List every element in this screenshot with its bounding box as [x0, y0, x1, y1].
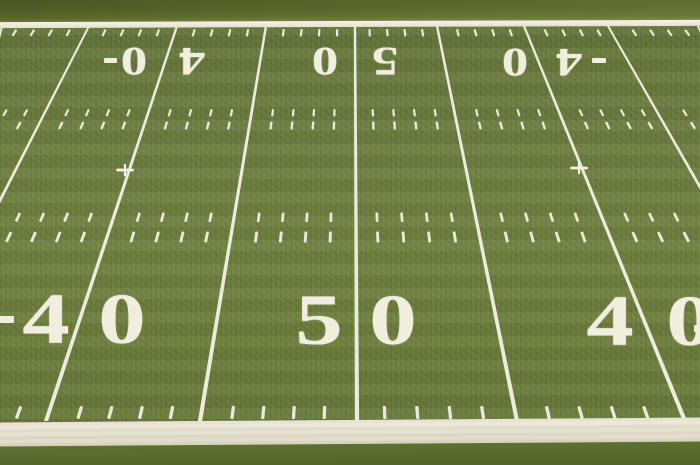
yard-digit: 0	[369, 284, 417, 356]
yard-number-near-40-left: 4 0	[28, 291, 140, 347]
football-field-photo: 4 0 5 0 4 0 4 0 5 0 4 0	[0, 0, 700, 465]
yard-number-far-50: 5 0	[315, 45, 395, 78]
yard-number-near-50: 5 0	[301, 292, 411, 348]
yard-lines-group	[0, 26, 700, 421]
goal-arrow-dash-far-left	[104, 58, 117, 63]
yard-digit: 5	[295, 284, 343, 356]
yard-digit: 4	[179, 42, 205, 82]
yard-number-far-40-left: 4 0	[124, 45, 202, 78]
yard-digit: 0	[312, 42, 338, 82]
goal-arrow-dash-near-left	[0, 316, 14, 323]
yard-digit: 0	[98, 283, 146, 355]
goal-arrow-dash-near-right	[694, 325, 700, 332]
yard-digit: 4	[586, 285, 634, 357]
near-apron	[0, 442, 700, 465]
yard-digit: 0	[121, 42, 147, 82]
yard-digit: 0	[502, 43, 528, 83]
yard-number-far-40-right: 4 0	[505, 46, 579, 79]
yard-digit: 0	[666, 285, 700, 357]
midfield-cross-marks	[118, 163, 587, 175]
yard-number-near-40-right: 4 0	[592, 293, 700, 349]
yard-digit: 4	[556, 43, 582, 83]
yard-digit: 5	[372, 42, 398, 82]
yard-digit: 4	[22, 283, 70, 355]
goal-arrow-dash-far-right	[592, 58, 606, 63]
